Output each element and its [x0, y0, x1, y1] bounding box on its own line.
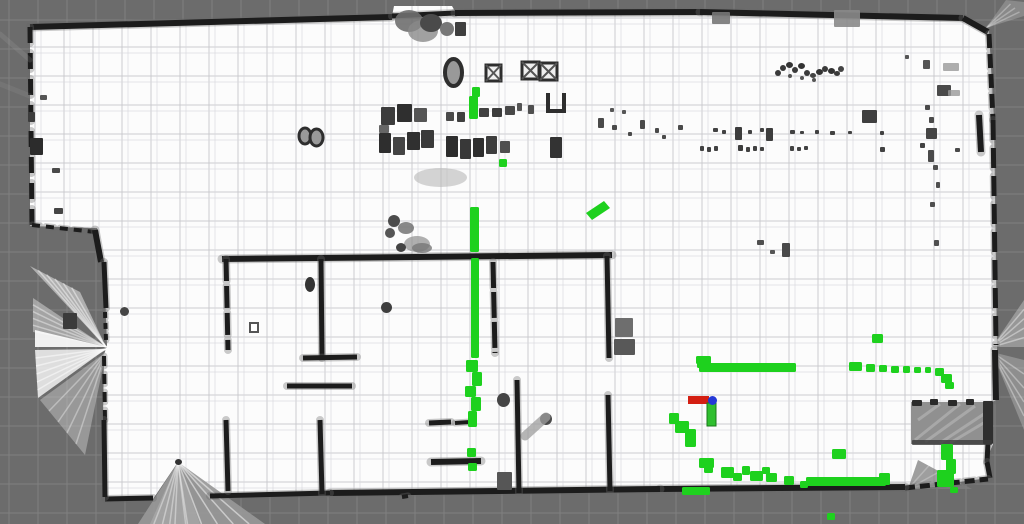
pose-x-axis: [688, 396, 709, 404]
pose-z-dot: [708, 396, 717, 405]
map-viewport: [0, 0, 1024, 524]
map-canvas[interactable]: [0, 0, 1024, 524]
pose-y-axis: [707, 403, 716, 426]
map-region: [0, 0, 1024, 524]
